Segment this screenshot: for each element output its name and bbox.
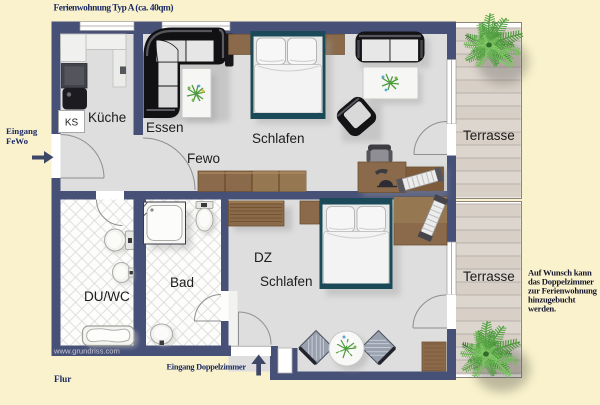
- svg-text:Schlafen: Schlafen: [260, 274, 313, 289]
- svg-text:Schlafen: Schlafen: [252, 131, 305, 146]
- svg-text:Küche: Küche: [88, 110, 126, 125]
- svg-text:DU/WC: DU/WC: [84, 289, 130, 304]
- svg-text:Eingang Doppelzimmer: Eingang Doppelzimmer: [167, 363, 247, 372]
- svg-text:werden.: werden.: [528, 304, 556, 314]
- svg-text:Terrasse: Terrasse: [463, 269, 515, 284]
- svg-text:DZ: DZ: [254, 250, 272, 265]
- svg-text:Ferienwohnung Typ A (ca. 40qm): Ferienwohnung Typ A (ca. 40qm): [54, 3, 174, 14]
- svg-text:Terrasse: Terrasse: [463, 128, 515, 143]
- svg-text:FeWo: FeWo: [6, 136, 29, 146]
- svg-text:Eingang: Eingang: [6, 126, 38, 136]
- svg-text:KS: KS: [65, 118, 79, 129]
- svg-text:Essen: Essen: [146, 120, 184, 135]
- svg-text:Flur: Flur: [54, 374, 71, 384]
- svg-text:www.grundriss.com: www.grundriss.com: [53, 347, 120, 356]
- svg-text:Fewo: Fewo: [187, 151, 220, 166]
- svg-text:Bad: Bad: [170, 275, 194, 290]
